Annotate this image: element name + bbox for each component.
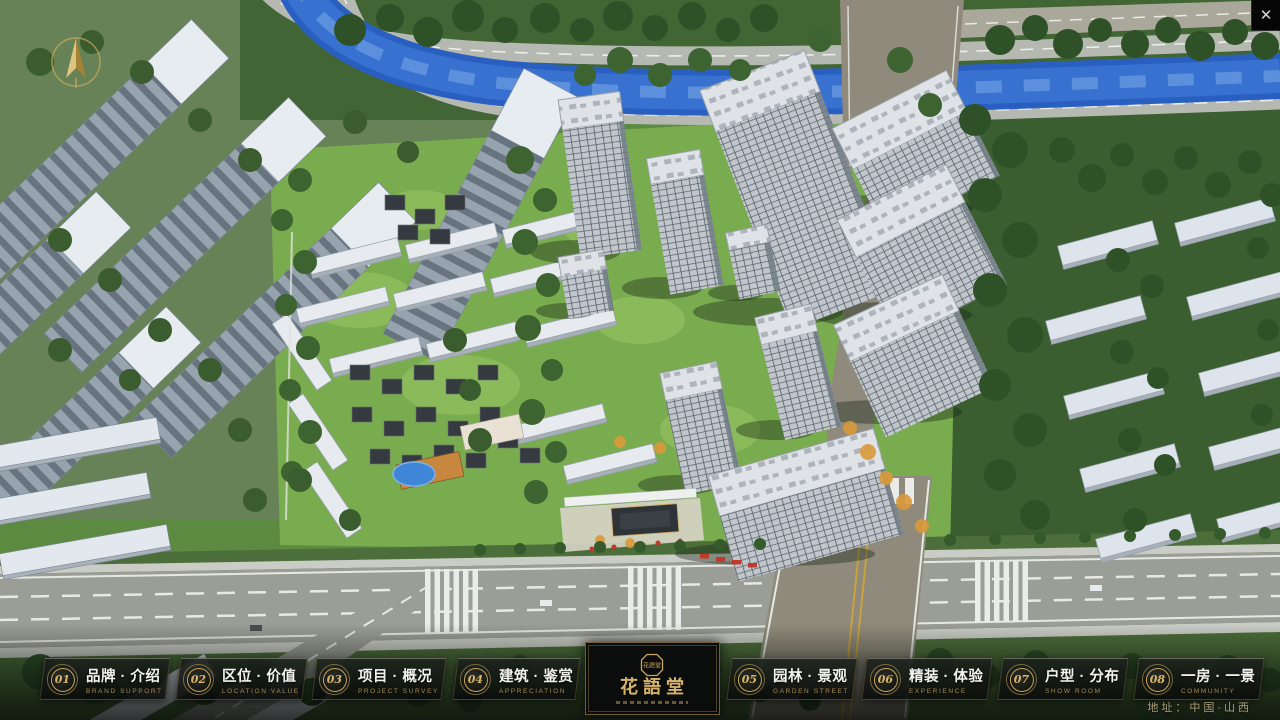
nav-item-content: 06精装 · 体验EXPERIENCE (867, 664, 988, 695)
nav-item-03[interactable]: 03项目 · 概况PROJECT SURVEY (312, 658, 447, 700)
nav-label-en: LOCATION VALUE (222, 687, 300, 694)
nav-label-zh: 品牌 · 介绍 (86, 664, 160, 685)
nav-item-content: 05园林 · 景观GARDEN STREET (730, 664, 853, 695)
close-icon: ✕ (1260, 7, 1273, 24)
nav-label-en: EXPERIENCE (910, 687, 968, 694)
nav-labels: 区位 · 价值LOCATION VALUE (222, 664, 300, 694)
nav-item-content: 03项目 · 概况PROJECT SURVEY (315, 664, 443, 695)
nav-labels: 精装 · 体验EXPERIENCE (910, 664, 984, 694)
nav-label-zh: 园林 · 景观 (773, 664, 847, 685)
brand-subtitle-line (616, 701, 688, 704)
nav-item-06[interactable]: 06精装 · 体验EXPERIENCE (862, 658, 993, 700)
address-label: 地址：中国·山西 (1147, 699, 1252, 715)
nav-number: 04 (463, 667, 487, 691)
nav-label-zh: 区位 · 价值 (222, 664, 296, 685)
nav-number: 02 (186, 667, 210, 691)
nav-label-en: GARDEN STREET (773, 687, 849, 694)
nav-number: 07 (1010, 667, 1034, 691)
nav-label-en: SHOW ROOM (1045, 687, 1102, 694)
nav-item-02[interactable]: 02区位 · 价值LOCATION VALUE (175, 658, 307, 700)
nav-label-en: PROJECT SURVEY (358, 687, 439, 694)
bottom-nav: 01品牌 · 介绍BRAND SUPPORT02区位 · 价值LOCATION … (0, 656, 1280, 720)
nav-label-zh: 项目 · 概况 (358, 664, 432, 685)
nav-labels: 园林 · 景观GARDEN STREET (773, 664, 849, 694)
nav-number-badge: 01 (47, 664, 78, 695)
nav-labels: 项目 · 概况PROJECT SURVEY (358, 664, 439, 694)
nav-item-content: 07户型 · 分布SHOW ROOM (1002, 664, 1123, 695)
nav-number-badge: 07 (1006, 664, 1037, 695)
nav-number: 05 (737, 667, 761, 691)
nav-number-badge: 08 (1142, 664, 1173, 695)
nav-item-content: 04建筑 · 鉴赏APPRECIATION (456, 664, 577, 695)
nav-number: 08 (1146, 667, 1170, 691)
nav-item-01[interactable]: 01品牌 · 介绍BRAND SUPPORT (39, 658, 170, 700)
brand-title: 花語堂 (615, 679, 689, 697)
nav-number: 06 (874, 667, 898, 691)
nav-group-left: 01品牌 · 介绍BRAND SUPPORT02区位 · 价值LOCATION … (42, 656, 576, 700)
nav-label-zh: 精装 · 体验 (910, 664, 984, 685)
nav-labels: 户型 · 分布SHOW ROOM (1045, 664, 1119, 694)
nav-labels: 建筑 · 鉴赏APPRECIATION (499, 664, 573, 694)
nav-item-05[interactable]: 05园林 · 景观GARDEN STREET (726, 658, 857, 700)
nav-label-en: COMMUNITY (1181, 687, 1235, 694)
nav-item-07[interactable]: 07户型 · 分布SHOW ROOM (998, 658, 1129, 700)
nav-label-zh: 建筑 · 鉴赏 (499, 664, 573, 685)
brand-logo-panel: 花語堂 花語堂 (585, 642, 720, 715)
nav-number: 03 (323, 667, 347, 691)
sales-presentation-window: ✕ 01品牌 · 介绍BRAND SUPPORT02区位 · 价值LOCATIO… (0, 0, 1280, 720)
nav-number-badge: 02 (183, 664, 214, 695)
compass-icon (48, 32, 104, 94)
nav-labels: 一房 · 一景COMMUNITY (1181, 664, 1255, 694)
nav-group-right: 05园林 · 景观GARDEN STREET06精装 · 体验EXPERIENC… (729, 656, 1263, 700)
nav-label-zh: 一房 · 一景 (1181, 664, 1255, 685)
nav-number-badge: 05 (734, 664, 765, 695)
nav-number-badge: 04 (460, 664, 491, 695)
nav-item-content: 08一房 · 一景COMMUNITY (1138, 664, 1259, 695)
nav-number: 01 (51, 667, 75, 691)
nav-item-08[interactable]: 08一房 · 一景COMMUNITY (1134, 658, 1265, 700)
nav-labels: 品牌 · 介绍BRAND SUPPORT (86, 664, 163, 694)
nav-item-04[interactable]: 04建筑 · 鉴赏APPRECIATION (452, 658, 581, 700)
nav-number-badge: 03 (319, 664, 350, 695)
aerial-masterplan-render (0, 0, 1280, 720)
nav-item-content: 01品牌 · 介绍BRAND SUPPORT (43, 664, 167, 695)
close-button[interactable]: ✕ (1251, 0, 1280, 31)
nav-number-badge: 06 (871, 664, 902, 695)
nav-item-content: 02区位 · 价值LOCATION VALUE (179, 664, 304, 695)
brand-seal-icon: 花語堂 (640, 653, 664, 677)
nav-label-zh: 户型 · 分布 (1045, 664, 1119, 685)
svg-text:花語堂: 花語堂 (643, 662, 661, 670)
nav-label-en: BRAND SUPPORT (86, 687, 163, 694)
nav-label-en: APPRECIATION (499, 687, 566, 694)
